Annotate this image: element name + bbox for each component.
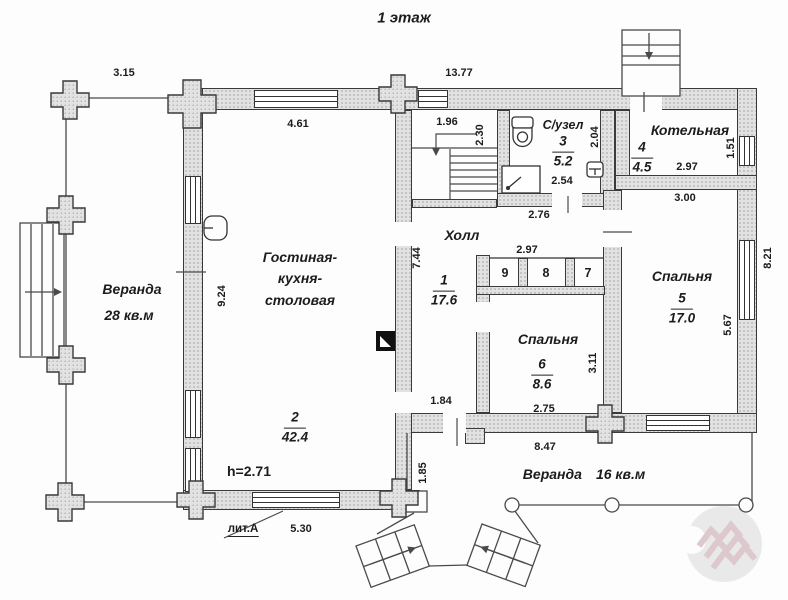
room-number-bedroom5: 5 17.0 [669, 291, 695, 328]
dimension-2-76: 2.76 [528, 209, 549, 221]
dimension-4-61: 4.61 [287, 118, 308, 130]
entry-steps-bottom-right [467, 524, 540, 587]
note-ceiling-height: h=2.71 [227, 463, 271, 479]
closet-number-7: 7 [585, 266, 592, 280]
room-number-hall: 1 17.6 [431, 273, 457, 310]
entry-steps-bottom-left [356, 525, 429, 588]
page-title: 1 этаж [377, 10, 431, 27]
dimension-1-96: 1.96 [436, 116, 457, 128]
shower-icon [502, 166, 540, 193]
entry-steps-left [20, 223, 64, 357]
dimension-7-44: 7.44 [411, 247, 423, 268]
dimension-1-84: 1.84 [430, 395, 451, 407]
dimension-13-77: 13.77 [445, 67, 473, 79]
room-label-boiler: Котельная [651, 122, 729, 138]
dimension-5-67: 5.67 [722, 314, 734, 335]
room-label-bedroom6: Спальня [518, 331, 578, 347]
floor-plan: 1 этаж Веранда 28 кв.м Гостиная- кухня- … [0, 0, 788, 600]
room-label-living-2: кухня- [278, 270, 322, 286]
room-label-veranda-left: Веранда [102, 281, 161, 297]
room-number-boiler: 4 4.5 [631, 140, 653, 177]
dimension-2-04: 2.04 [589, 126, 601, 147]
room-label-bathroom: С/узел [543, 118, 584, 132]
room-label-living-1: Гостиная- [263, 249, 337, 265]
room-number-living: 2 42.4 [282, 410, 308, 447]
flue-icon [376, 331, 395, 351]
room-number-bedroom6: 6 8.6 [531, 357, 553, 394]
kitchen-sink-icon [204, 216, 227, 240]
toilet-icon [512, 117, 533, 147]
watermark-logo [678, 506, 762, 582]
dimension-1-51: 1.51 [725, 137, 737, 158]
dimension-2-97-closets: 2.97 [516, 244, 537, 256]
dimension-2-30: 2.30 [474, 124, 486, 145]
dimension-8-47: 8.47 [534, 441, 555, 453]
veranda-left-outline [66, 98, 183, 502]
note-liter: лит.А [228, 523, 259, 537]
room-label-bedroom5: Спальня [652, 268, 712, 284]
dimension-5-30: 5.30 [290, 523, 311, 535]
dimension-3-11: 3.11 [587, 353, 599, 374]
dimension-2-75: 2.75 [533, 403, 554, 415]
closet-number-8: 8 [543, 266, 550, 280]
column-posts [46, 75, 624, 521]
dimension-2-54: 2.54 [551, 175, 572, 187]
entry-steps-top [622, 30, 680, 112]
room-area-veranda-left: 28 кв.м [104, 307, 153, 323]
room-label-veranda-bottom: Веранда 16 кв.м [523, 466, 645, 482]
room-number-bathroom: 3 5.2 [552, 134, 574, 171]
dimension-2-97-boiler: 2.97 [676, 161, 697, 173]
room-label-living-3: столовая [265, 292, 335, 308]
dimension-3-15: 3.15 [113, 67, 134, 79]
room-label-hall: Холл [445, 227, 480, 243]
closet-number-9: 9 [502, 266, 509, 280]
dimension-8-21: 8.21 [762, 247, 774, 268]
sink-icon [587, 162, 603, 177]
dimension-3-00: 3.00 [674, 192, 695, 204]
dimension-9-24: 9.24 [216, 285, 228, 306]
dimension-1-85: 1.85 [417, 462, 429, 483]
